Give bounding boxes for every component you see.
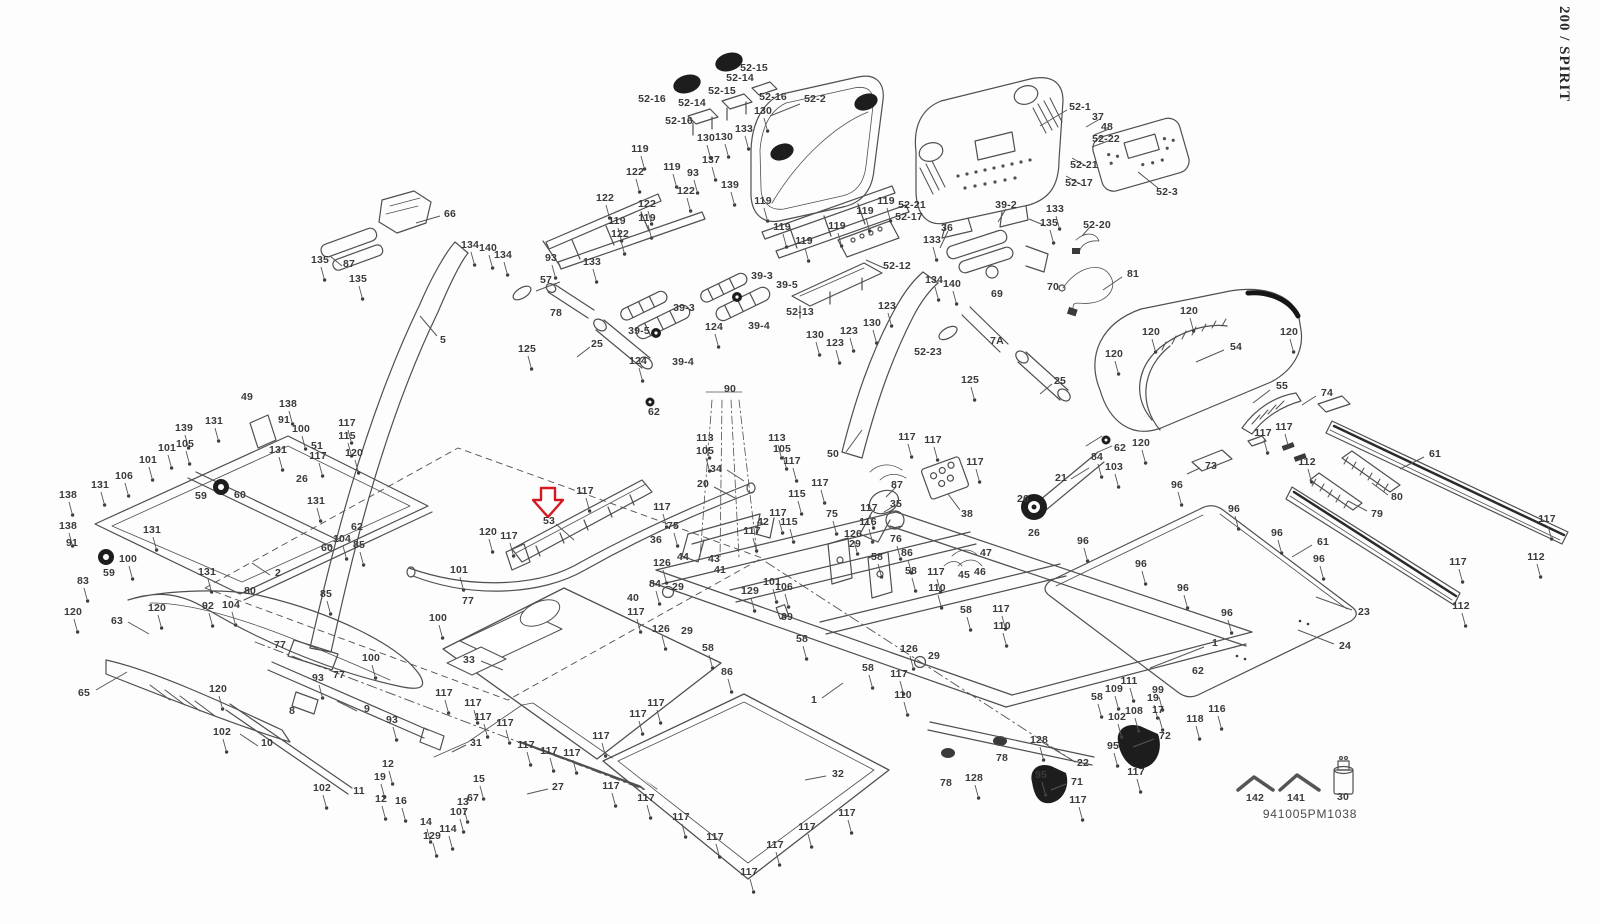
highlight-arrow-icon bbox=[533, 488, 563, 517]
doc-side-title: 200 / SPIRIT bbox=[1555, 6, 1572, 102]
exploded-view-art bbox=[0, 0, 1600, 924]
diagram-linework bbox=[95, 49, 1568, 879]
diagram-part-code: 941005PM1038 bbox=[1240, 807, 1380, 821]
exploded-parts-diagram: 52-1552-1452-1552-1652-1452-1613052-1613… bbox=[0, 0, 1600, 924]
